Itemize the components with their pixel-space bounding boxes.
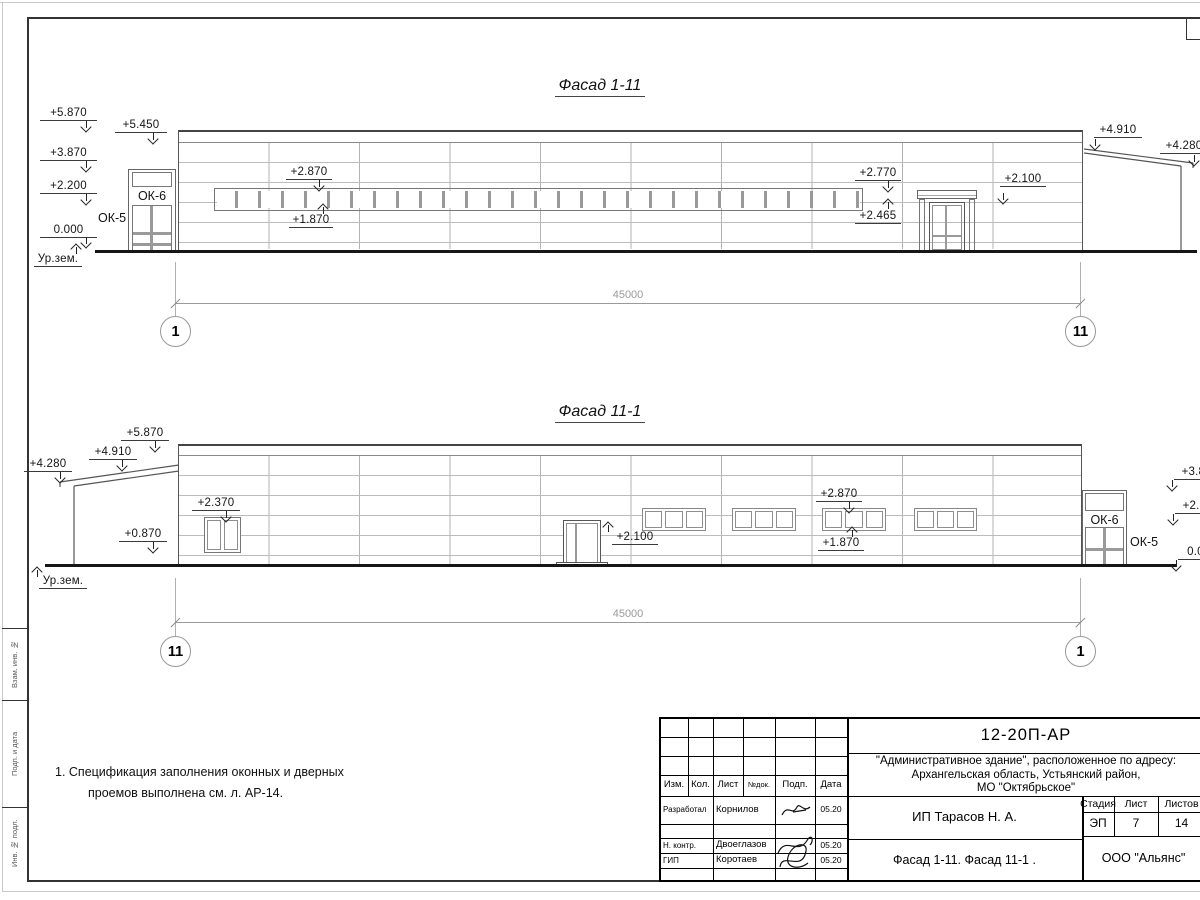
level-mark-label: Ур.зем.	[34, 253, 82, 267]
axis-circle: 11	[1065, 316, 1096, 347]
tb-stage-value: ЭП	[1082, 812, 1114, 836]
level-mark: +1.870	[289, 214, 333, 228]
ok6-label: ОК-6	[129, 189, 175, 203]
frame-left	[27, 17, 29, 881]
level-mark-label: +2.770	[855, 167, 901, 181]
level-arrow-down-icon	[148, 133, 158, 146]
tb-col-doc: №док.	[743, 775, 775, 796]
extension-line	[175, 262, 176, 317]
level-arrow-down-icon	[81, 121, 91, 134]
facade1-entrance-vestibule: ОК-6	[128, 169, 176, 251]
level-mark: +0.870	[119, 528, 167, 542]
level-mark: +2.370	[192, 497, 240, 511]
facade2-window-group	[732, 508, 796, 531]
level-mark: 0.000	[1178, 546, 1200, 560]
level-mark-label: +2.370	[192, 497, 240, 511]
level-mark-label: +2.100	[612, 531, 658, 545]
level-arrow-down-icon	[81, 237, 91, 250]
door-leaf	[932, 205, 962, 250]
level-mark-label: +5.450	[115, 119, 167, 133]
tb-name-ncontrol: Двоеглазов	[713, 838, 775, 853]
level-mark: +5.870	[121, 427, 169, 441]
level-mark: +2.870	[286, 166, 332, 180]
extension-line	[175, 578, 176, 637]
window-pane	[224, 520, 238, 550]
level-arrow-down-icon	[117, 460, 127, 473]
margin-label: Взам. инв. №	[3, 628, 26, 700]
tb-line	[660, 824, 847, 825]
level-mark-label: +4.280	[24, 458, 72, 472]
level-arrow-down-icon	[844, 502, 854, 515]
facade2-title: Фасад 11-1	[540, 403, 660, 421]
door-leaf	[566, 523, 598, 565]
facade1-transom-window	[132, 172, 172, 187]
door-pilaster	[919, 199, 925, 251]
window-pane	[665, 511, 682, 528]
facade2-entrance-glazing	[1085, 527, 1124, 565]
level-mark: +4.910	[1094, 124, 1142, 138]
level-mark-label: 0.000	[1178, 546, 1200, 560]
sheet-edge-top	[0, 2, 1200, 3]
facade2-window-group	[642, 508, 706, 531]
sheet-edge-bottom	[2, 891, 1200, 892]
level-mark-label: +2.465	[855, 210, 901, 224]
window-pane	[825, 511, 842, 528]
axis-circle: 1	[160, 316, 191, 347]
tb-col-data: Дата	[815, 775, 847, 796]
tb-col-list: Лист	[713, 775, 743, 796]
level-mark-label: +5.870	[40, 107, 97, 121]
tb-role-developer: Разработал	[660, 796, 713, 824]
ground-level-mark: Ур.зем.	[39, 575, 87, 589]
mullion	[575, 524, 577, 564]
level-mark: +5.870	[40, 107, 97, 121]
note-line-1: 1. Спецификация заполнения оконных и две…	[55, 765, 344, 779]
tb-date-ncontrol: 05.20	[815, 838, 847, 853]
window-pane	[776, 511, 793, 528]
mullion	[133, 243, 171, 246]
tb-date-developer: 05.20	[815, 796, 847, 824]
level-mark: +3.870	[1174, 466, 1200, 480]
level-mark: +2.100	[612, 531, 658, 545]
window-pane	[937, 511, 954, 528]
level-mark: +2.870	[816, 488, 862, 502]
facade1-door-unit	[917, 190, 977, 251]
level-mark-label: +2.870	[816, 488, 862, 502]
level-arrow-down-icon	[55, 472, 65, 485]
window-pane	[917, 511, 934, 528]
ok5-label: ОК-5	[1130, 535, 1158, 549]
facade2-transom-window	[1085, 493, 1124, 511]
mullion	[933, 235, 961, 237]
level-arrow-up-icon	[847, 524, 857, 537]
extension-line	[1080, 262, 1081, 317]
tb-sheet-value: 7	[1114, 812, 1158, 836]
level-mark: +4.910	[89, 446, 137, 460]
level-arrow-down-icon	[1167, 480, 1177, 493]
level-mark-label: +3.870	[40, 147, 97, 161]
level-arrow-down-icon	[998, 193, 1008, 206]
note-line-2: проемов выполнена см. л. АР-14.	[88, 786, 283, 800]
tb-sheets-label: Листов	[1158, 796, 1200, 812]
tb-client: ИП Тарасов Н. А.	[847, 796, 1082, 839]
level-mark-label: +2.200	[40, 180, 97, 194]
tb-sheets-value: 14	[1158, 812, 1200, 836]
facade1-annex	[1083, 140, 1200, 252]
tb-company: ООО "Альянс"	[1082, 836, 1200, 881]
window-pane	[686, 511, 703, 528]
tb-col-podp: Подп.	[775, 775, 815, 796]
mullion	[1086, 548, 1123, 551]
facade2-annex	[58, 460, 180, 566]
facade2-ground-line	[45, 564, 1177, 567]
level-arrow-down-icon	[1189, 155, 1199, 168]
level-mark-label: +2.200	[1175, 500, 1200, 514]
window-pane	[866, 511, 883, 528]
level-mark-label: +2.100	[1000, 173, 1046, 187]
facade1-title: Фасад 1-11	[540, 77, 660, 95]
margin-label: Инв. № подл.	[3, 807, 26, 880]
tb-col-izm: Изм.	[660, 775, 688, 796]
level-arrow-up-icon	[318, 201, 328, 214]
window-pane	[735, 511, 752, 528]
level-mark: +5.450	[115, 119, 167, 133]
tb-drawing-title: Фасад 1-11. Фасад 11-1 .	[847, 839, 1082, 881]
facade1-ribbon-window	[214, 188, 863, 211]
signature-developer	[779, 799, 813, 821]
level-arrow-down-icon	[314, 180, 324, 193]
tb-name-gip: Коротаев	[713, 853, 775, 868]
tb-col-kol: Кол.	[688, 775, 713, 796]
drawing-sheet: Взам. инв. № Подп. и дата Инв. № подл. Ф…	[0, 0, 1200, 900]
level-mark: +4.280	[1160, 140, 1200, 154]
level-mark: +3.870	[40, 147, 97, 161]
facade2-main-wall	[178, 444, 1082, 566]
dimension-value: 45000	[598, 608, 658, 620]
margin-label: Подп. и дата	[3, 700, 26, 807]
level-mark-label: +0.870	[119, 528, 167, 542]
level-arrow-down-icon	[1090, 139, 1100, 152]
tb-line	[847, 753, 1200, 754]
window-pane	[755, 511, 772, 528]
facade2-entrance-vestibule: ОК-6	[1082, 490, 1127, 566]
level-mark: +2.200	[40, 180, 97, 194]
level-mark: +4.280	[24, 458, 72, 472]
level-mark-label: +4.910	[1094, 124, 1142, 138]
facade1-entrance-glazing	[132, 205, 172, 251]
dimension-line	[175, 622, 1081, 623]
window-pane	[207, 520, 221, 550]
ground-level-mark: Ур.зем.	[34, 253, 82, 267]
level-mark-label: +4.910	[89, 446, 137, 460]
level-mark: +2.770	[855, 167, 901, 181]
level-mark-label: +4.280	[1160, 140, 1200, 154]
level-arrow-down-icon	[221, 511, 231, 524]
window-pane	[957, 511, 974, 528]
dimension-value: 45000	[598, 289, 658, 301]
mullion	[1103, 528, 1106, 564]
level-mark: +2.200	[1175, 500, 1200, 514]
level-arrow-down-icon	[81, 161, 91, 174]
extension-line	[1080, 578, 1081, 637]
door-pilaster	[969, 199, 975, 251]
level-mark: 0.000	[40, 224, 97, 238]
level-arrow-down-icon	[1168, 514, 1178, 527]
level-arrow-down-icon	[883, 181, 893, 194]
facade1-door	[929, 202, 965, 251]
ok6-label: ОК-6	[1083, 513, 1126, 527]
level-arrow-down-icon	[1171, 560, 1181, 573]
tb-role-ncontrol: Н. контр.	[660, 838, 713, 853]
level-arrow-down-icon	[150, 441, 160, 454]
tb-stage-label: Стадия	[1082, 796, 1114, 812]
frame-corner-box	[1186, 17, 1200, 40]
tb-address-line1: "Административное здание", расположенное…	[850, 755, 1200, 769]
facade2-window-group	[914, 508, 977, 531]
tb-address-line3: МО "Октябрьское"	[850, 782, 1200, 796]
tb-line	[660, 868, 847, 869]
axis-circle: 11	[160, 636, 191, 667]
mullion	[945, 206, 947, 249]
facade1-ground-line	[95, 250, 1197, 253]
tb-name-developer: Корнилов	[713, 796, 775, 824]
tb-role-gip: ГИП	[660, 853, 713, 868]
tb-project-address: "Административное здание", расположенное…	[850, 755, 1200, 795]
level-mark-label: 0.000	[40, 224, 97, 238]
ok5-label: ОК-5	[98, 211, 126, 225]
level-arrow-up-icon	[883, 196, 893, 209]
level-mark-label: Ур.зем.	[39, 575, 87, 589]
door-canopy	[917, 190, 977, 199]
level-mark: +1.870	[818, 537, 864, 551]
mullion	[133, 232, 171, 235]
level-mark: +2.465	[855, 210, 901, 224]
level-mark-label: +1.870	[289, 214, 333, 228]
level-arrow-down-icon	[148, 542, 158, 555]
level-mark-label: +5.870	[121, 427, 169, 441]
tb-sheet-label: Лист	[1114, 796, 1158, 812]
level-mark-label: +3.870	[1174, 466, 1200, 480]
facade2-door	[563, 520, 601, 566]
canopy-line	[918, 195, 976, 196]
tb-doc-number: 12-20П-АР	[847, 718, 1200, 753]
level-mark: +2.100	[1000, 173, 1046, 187]
tb-date-gip: 05.20	[815, 853, 847, 868]
frame-top	[27, 17, 1200, 19]
dimension-line	[175, 303, 1081, 304]
signature-flourish	[772, 833, 818, 875]
tb-address-line2: Архангельская область, Устьянский район,	[850, 769, 1200, 783]
level-mark-label: +2.870	[286, 166, 332, 180]
axis-circle: 1	[1065, 636, 1096, 667]
window-pane	[645, 511, 662, 528]
level-arrow-down-icon	[81, 194, 91, 207]
level-mark-label: +1.870	[818, 537, 864, 551]
